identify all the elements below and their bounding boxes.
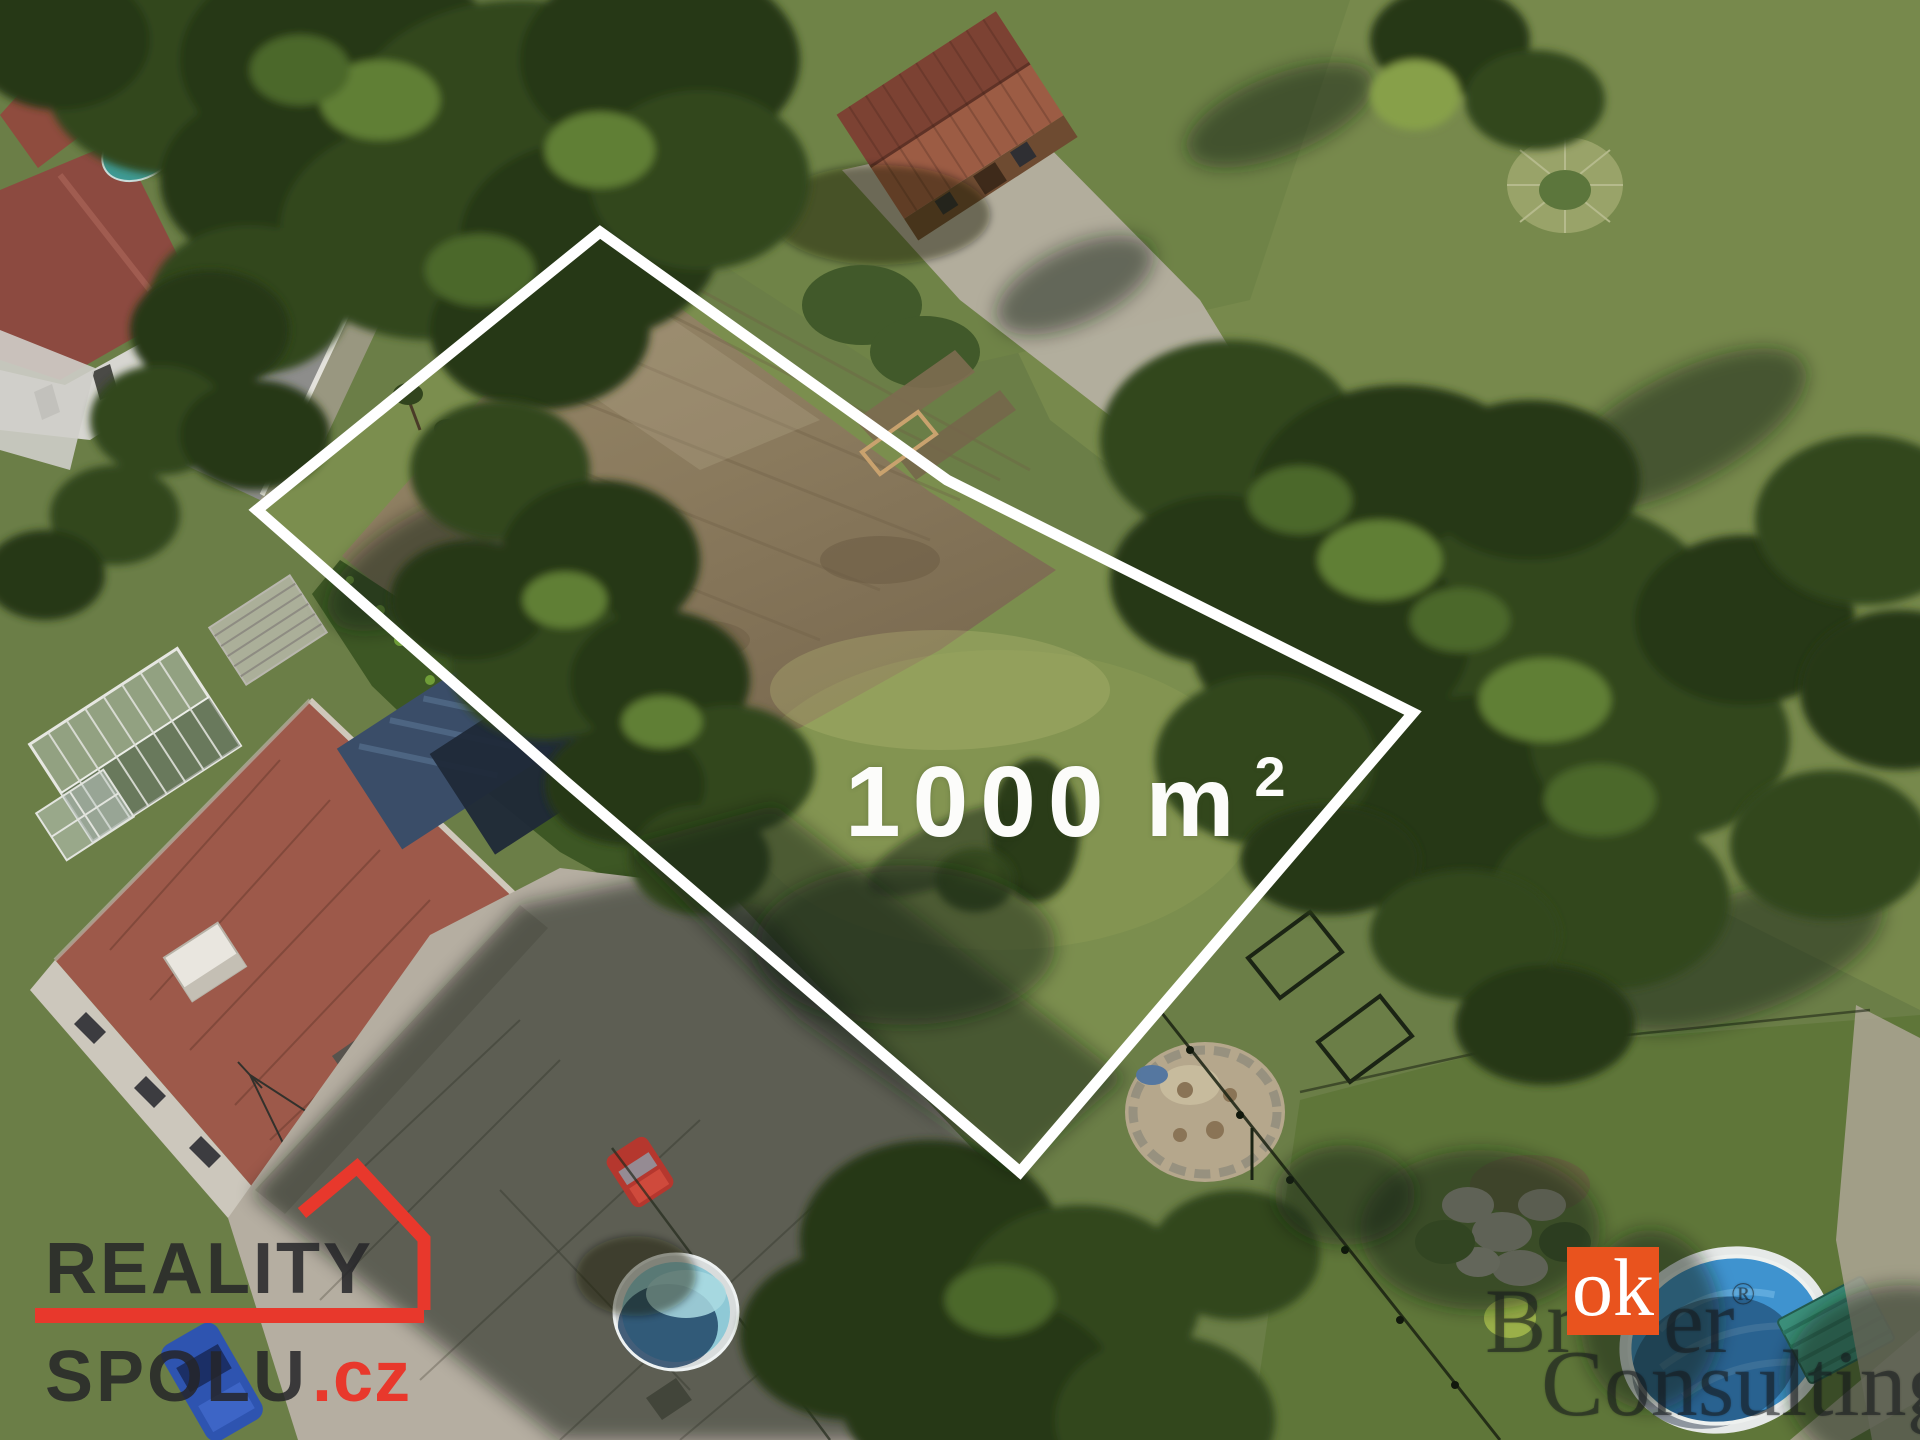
aerial-plot-photo: 1000m2 REALITY SPOLU.cz Br er ® ok Consu… [0, 0, 1920, 1440]
consulting-word: Consulting [1541, 1337, 1920, 1431]
reality-spolu-word2: SPOLU [45, 1337, 308, 1417]
reality-spolu-tld: .cz [312, 1337, 411, 1417]
reality-spolu-watermark: REALITY SPOLU.cz [30, 1125, 462, 1425]
plot-area-label: 1000m2 [845, 752, 1286, 852]
worn-grass-patch [770, 630, 1110, 750]
area-superscript: 2 [1254, 745, 1285, 808]
registered-mark: ® [1731, 1277, 1755, 1309]
reality-spolu-line1: REALITY [45, 1233, 374, 1305]
area-unit: m [1145, 746, 1246, 858]
logo-underline-bar [35, 1308, 424, 1323]
reality-spolu-line2: SPOLU.cz [45, 1341, 411, 1413]
stone-circle [1125, 1042, 1285, 1182]
dry-grass-bush [1507, 137, 1623, 233]
broker-consulting-watermark: Br er ® ok Consulting [1455, 1225, 1920, 1440]
area-number: 1000 [845, 746, 1115, 858]
broker-highlight-box: ok [1567, 1247, 1659, 1335]
